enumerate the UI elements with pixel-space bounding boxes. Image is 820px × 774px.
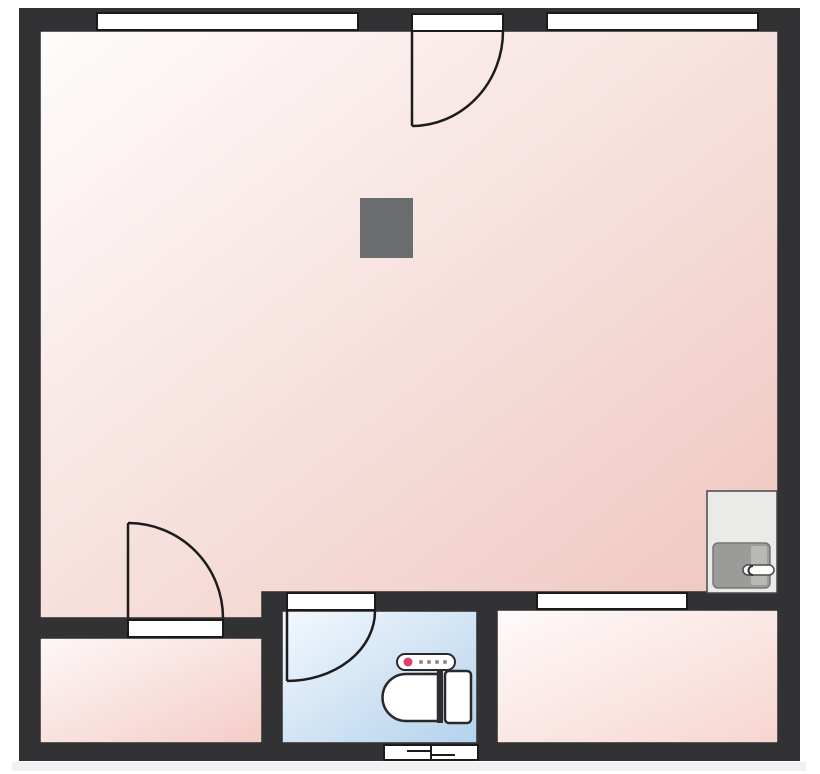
floor-plan [0, 0, 820, 774]
toilet-panel-power-dot [404, 658, 413, 667]
structural-column [360, 198, 413, 258]
window-top-right [547, 13, 758, 30]
bottom-right-opening [537, 593, 687, 609]
floor-shadow-strip [12, 762, 806, 771]
toilet-panel-button [427, 660, 431, 664]
toilet-panel-button [443, 660, 447, 664]
toilet-panel-button [435, 660, 439, 664]
corner-appliance [707, 491, 777, 593]
wall-bathroom-left [262, 592, 282, 743]
main-room-floor [40, 31, 778, 618]
bottom-left-room-floor [40, 638, 262, 743]
bathroom-vent-window [384, 745, 478, 760]
wall-bathroom-right [477, 592, 497, 743]
bottom-left-door-opening [128, 620, 223, 637]
toilet-panel-button [419, 660, 423, 664]
bathroom-door-opening [287, 593, 375, 610]
bottom-right-room-floor [497, 610, 778, 743]
toilet-bowl [383, 674, 439, 721]
outer-wall-right [778, 8, 800, 761]
entry-door-opening [412, 14, 503, 31]
toilet-tank [445, 671, 471, 723]
window-top-left [97, 13, 358, 30]
toilet-hinge-bar [437, 671, 443, 723]
floor-plan-canvas [0, 0, 820, 774]
outer-wall-left [19, 8, 40, 761]
